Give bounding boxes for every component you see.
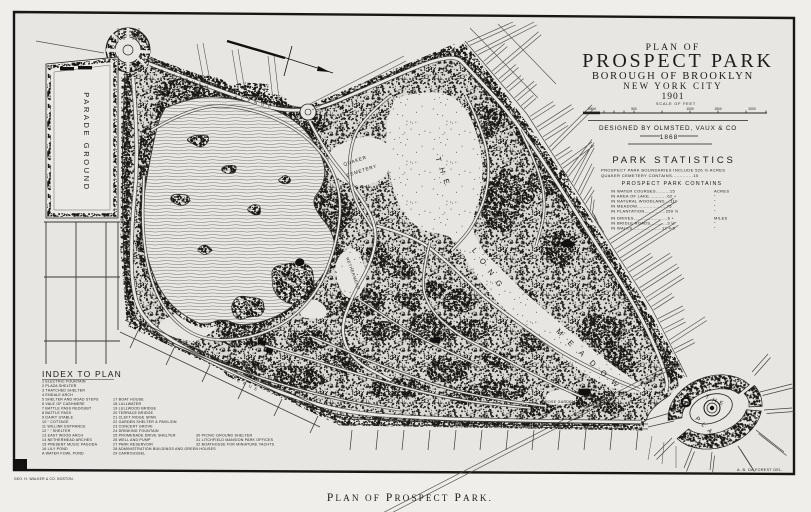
svg-text:5 SHELTER AND ROAD STEPS: 5 SHELTER AND ROAD STEPS bbox=[42, 398, 99, 402]
svg-text:DESIGNED BY OLMSTED, VAUX & CO: DESIGNED BY OLMSTED, VAUX & CO bbox=[599, 125, 737, 132]
svg-text:MILES: MILES bbox=[714, 216, 728, 221]
svg-text:INDEX TO PLAN: INDEX TO PLAN bbox=[42, 369, 122, 379]
svg-text:IN WALKS.....................1: IN WALKS.....................12 4-5 bbox=[611, 226, 676, 231]
svg-text:PARADE GROUND: PARADE GROUND bbox=[82, 92, 91, 192]
svg-text:19 LULLWOOD BRIDGE: 19 LULLWOOD BRIDGE bbox=[113, 407, 157, 411]
svg-text:12 “ “ SHELTER: 12 “ “ SHELTER bbox=[42, 429, 71, 433]
svg-text:IN DRIVES.....................: IN DRIVES........................6 + bbox=[611, 216, 675, 221]
svg-text:F L A T B U S H: F L A T B U S H bbox=[438, 423, 480, 428]
svg-text:11 WILLINK ENTRANCE: 11 WILLINK ENTRANCE bbox=[42, 425, 86, 429]
svg-text:4 ENDALE ARCH: 4 ENDALE ARCH bbox=[42, 393, 73, 397]
svg-text:25 PROMENADE DRIVE SHELTER: 25 PROMENADE DRIVE SHELTER bbox=[113, 434, 176, 438]
svg-text:21 CLEFT RIDGE SPAN: 21 CLEFT RIDGE SPAN bbox=[113, 416, 156, 420]
svg-text:IN BRIDLE ROADS............3 ½: IN BRIDLE ROADS............3 ½ bbox=[611, 221, 675, 226]
svg-text:22 GARDEN SHELTER & PAVILION: 22 GARDEN SHELTER & PAVILION bbox=[113, 420, 177, 424]
svg-text:300 0: 300 0 bbox=[588, 107, 596, 111]
svg-text:SCALE OF FEET: SCALE OF FEET bbox=[656, 102, 696, 106]
svg-text:23 CONCERT GROVE: 23 CONCERT GROVE bbox=[113, 425, 153, 429]
svg-text:10 “ COTTAGE: 10 “ COTTAGE bbox=[42, 420, 69, 424]
svg-text:13 EAST WOOD ARCH: 13 EAST WOOD ARCH bbox=[42, 434, 83, 438]
svg-text:2000: 2000 bbox=[748, 107, 756, 111]
svg-text:24 DRINKING FOUNTAIN: 24 DRINKING FOUNTAIN bbox=[113, 429, 159, 433]
svg-text:A V E N U E: A V E N U E bbox=[505, 425, 537, 430]
svg-text:15 PRESENT MUSIC PAGODA: 15 PRESENT MUSIC PAGODA bbox=[42, 443, 98, 447]
svg-text:ROSE GARDEN: ROSE GARDEN bbox=[545, 400, 575, 404]
svg-text:IN MEADOW.....................: IN MEADOW.....................75 bbox=[611, 204, 672, 209]
svg-text:A. B. De FOREST DEL.: A. B. De FOREST DEL. bbox=[737, 468, 783, 472]
svg-text:27 PARK RESERVOIR: 27 PARK RESERVOIR bbox=[113, 443, 153, 447]
svg-text:QUAKER CEMETERY CONTAINS......: QUAKER CEMETERY CONTAINS..............10 bbox=[601, 173, 699, 178]
svg-text:8 BATTLE PASS: 8 BATTLE PASS bbox=[42, 411, 72, 415]
svg-text:PROSPECT PARK BOUNDARIES INCLU: PROSPECT PARK BOUNDARIES INCLUDE 526 ½ A… bbox=[601, 168, 725, 173]
svg-text:1868: 1868 bbox=[660, 134, 678, 141]
svg-text:26 WELL AND PUMP: 26 WELL AND PUMP bbox=[113, 438, 151, 442]
svg-text:9 DAIRY STABLE: 9 DAIRY STABLE bbox=[42, 416, 74, 420]
svg-text:PROSPECT PARK: PROSPECT PARK bbox=[582, 50, 773, 72]
svg-text:1000: 1000 bbox=[686, 107, 694, 111]
svg-text:A WATER FOWL POND: A WATER FOWL POND bbox=[42, 452, 84, 456]
svg-text:PARK STATISTICS: PARK STATISTICS bbox=[612, 155, 735, 166]
svg-text:29 CARROUSSEL: 29 CARROUSSEL bbox=[113, 452, 145, 456]
svg-text:14 NETHERMEAD ARCHES: 14 NETHERMEAD ARCHES bbox=[42, 438, 92, 442]
svg-text:3 THATCHED SHELTER: 3 THATCHED SHELTER bbox=[42, 389, 85, 393]
svg-text:500: 500 bbox=[631, 107, 637, 111]
svg-text:2 PLAZA SHELTER: 2 PLAZA SHELTER bbox=[42, 384, 77, 388]
svg-text:6 VALE OF CASHMERE: 6 VALE OF CASHMERE bbox=[42, 402, 85, 406]
svg-text:12: 12 bbox=[16, 462, 24, 471]
svg-text:32 BOATHOUSE FOR MINIATURE YAC: 32 BOATHOUSE FOR MINIATURE YACHTS bbox=[196, 443, 275, 447]
svg-text:IN PLANTATION...............25: IN PLANTATION...............259 ½ bbox=[611, 209, 679, 214]
svg-text:20 TERRACE BRIDGE: 20 TERRACE BRIDGE bbox=[113, 411, 154, 415]
svg-text:IN NATURAL WOODLAND....110: IN NATURAL WOODLAND....110 bbox=[611, 199, 678, 204]
svg-text:NEW YORK CITY: NEW YORK CITY bbox=[623, 81, 723, 91]
svg-text:17 BOAT HOUSE: 17 BOAT HOUSE bbox=[113, 398, 144, 402]
svg-text:1 ELECTRIC FOUNTAIN: 1 ELECTRIC FOUNTAIN bbox=[42, 380, 86, 384]
svg-text:28 ADMINISTRATION BUILDINGS AN: 28 ADMINISTRATION BUILDINGS AND GREEN HO… bbox=[113, 447, 216, 451]
svg-text:1500: 1500 bbox=[714, 107, 722, 111]
svg-text:PLAN OF PROSPECT PARK.: PLAN OF PROSPECT PARK. bbox=[327, 492, 493, 504]
svg-text:IN WATER COURSES..........15: IN WATER COURSES..........15 bbox=[611, 189, 675, 194]
svg-text:PROSPECT PARK CONTAINS: PROSPECT PARK CONTAINS bbox=[622, 181, 723, 187]
svg-text:GEO. H. WALKER & CO. BOSTON.: GEO. H. WALKER & CO. BOSTON. bbox=[14, 477, 74, 481]
svg-text:IN AREA OF LAKE.............62: IN AREA OF LAKE.............62 + bbox=[611, 194, 677, 199]
svg-text:ACRES: ACRES bbox=[714, 189, 729, 194]
svg-text:30 PICNIC GROUND SHELTER: 30 PICNIC GROUND SHELTER bbox=[196, 434, 252, 438]
svg-text:18 LULLWATER: 18 LULLWATER bbox=[113, 402, 142, 406]
svg-text:16 LILY POND: 16 LILY POND bbox=[42, 447, 68, 451]
svg-text:7 BATTLE PASS REDOUBT: 7 BATTLE PASS REDOUBT bbox=[42, 407, 92, 411]
svg-text:1901: 1901 bbox=[662, 92, 685, 102]
svg-text:31 LITCHFIELD MANSION PARK OFF: 31 LITCHFIELD MANSION PARK OFFICES bbox=[196, 438, 274, 442]
